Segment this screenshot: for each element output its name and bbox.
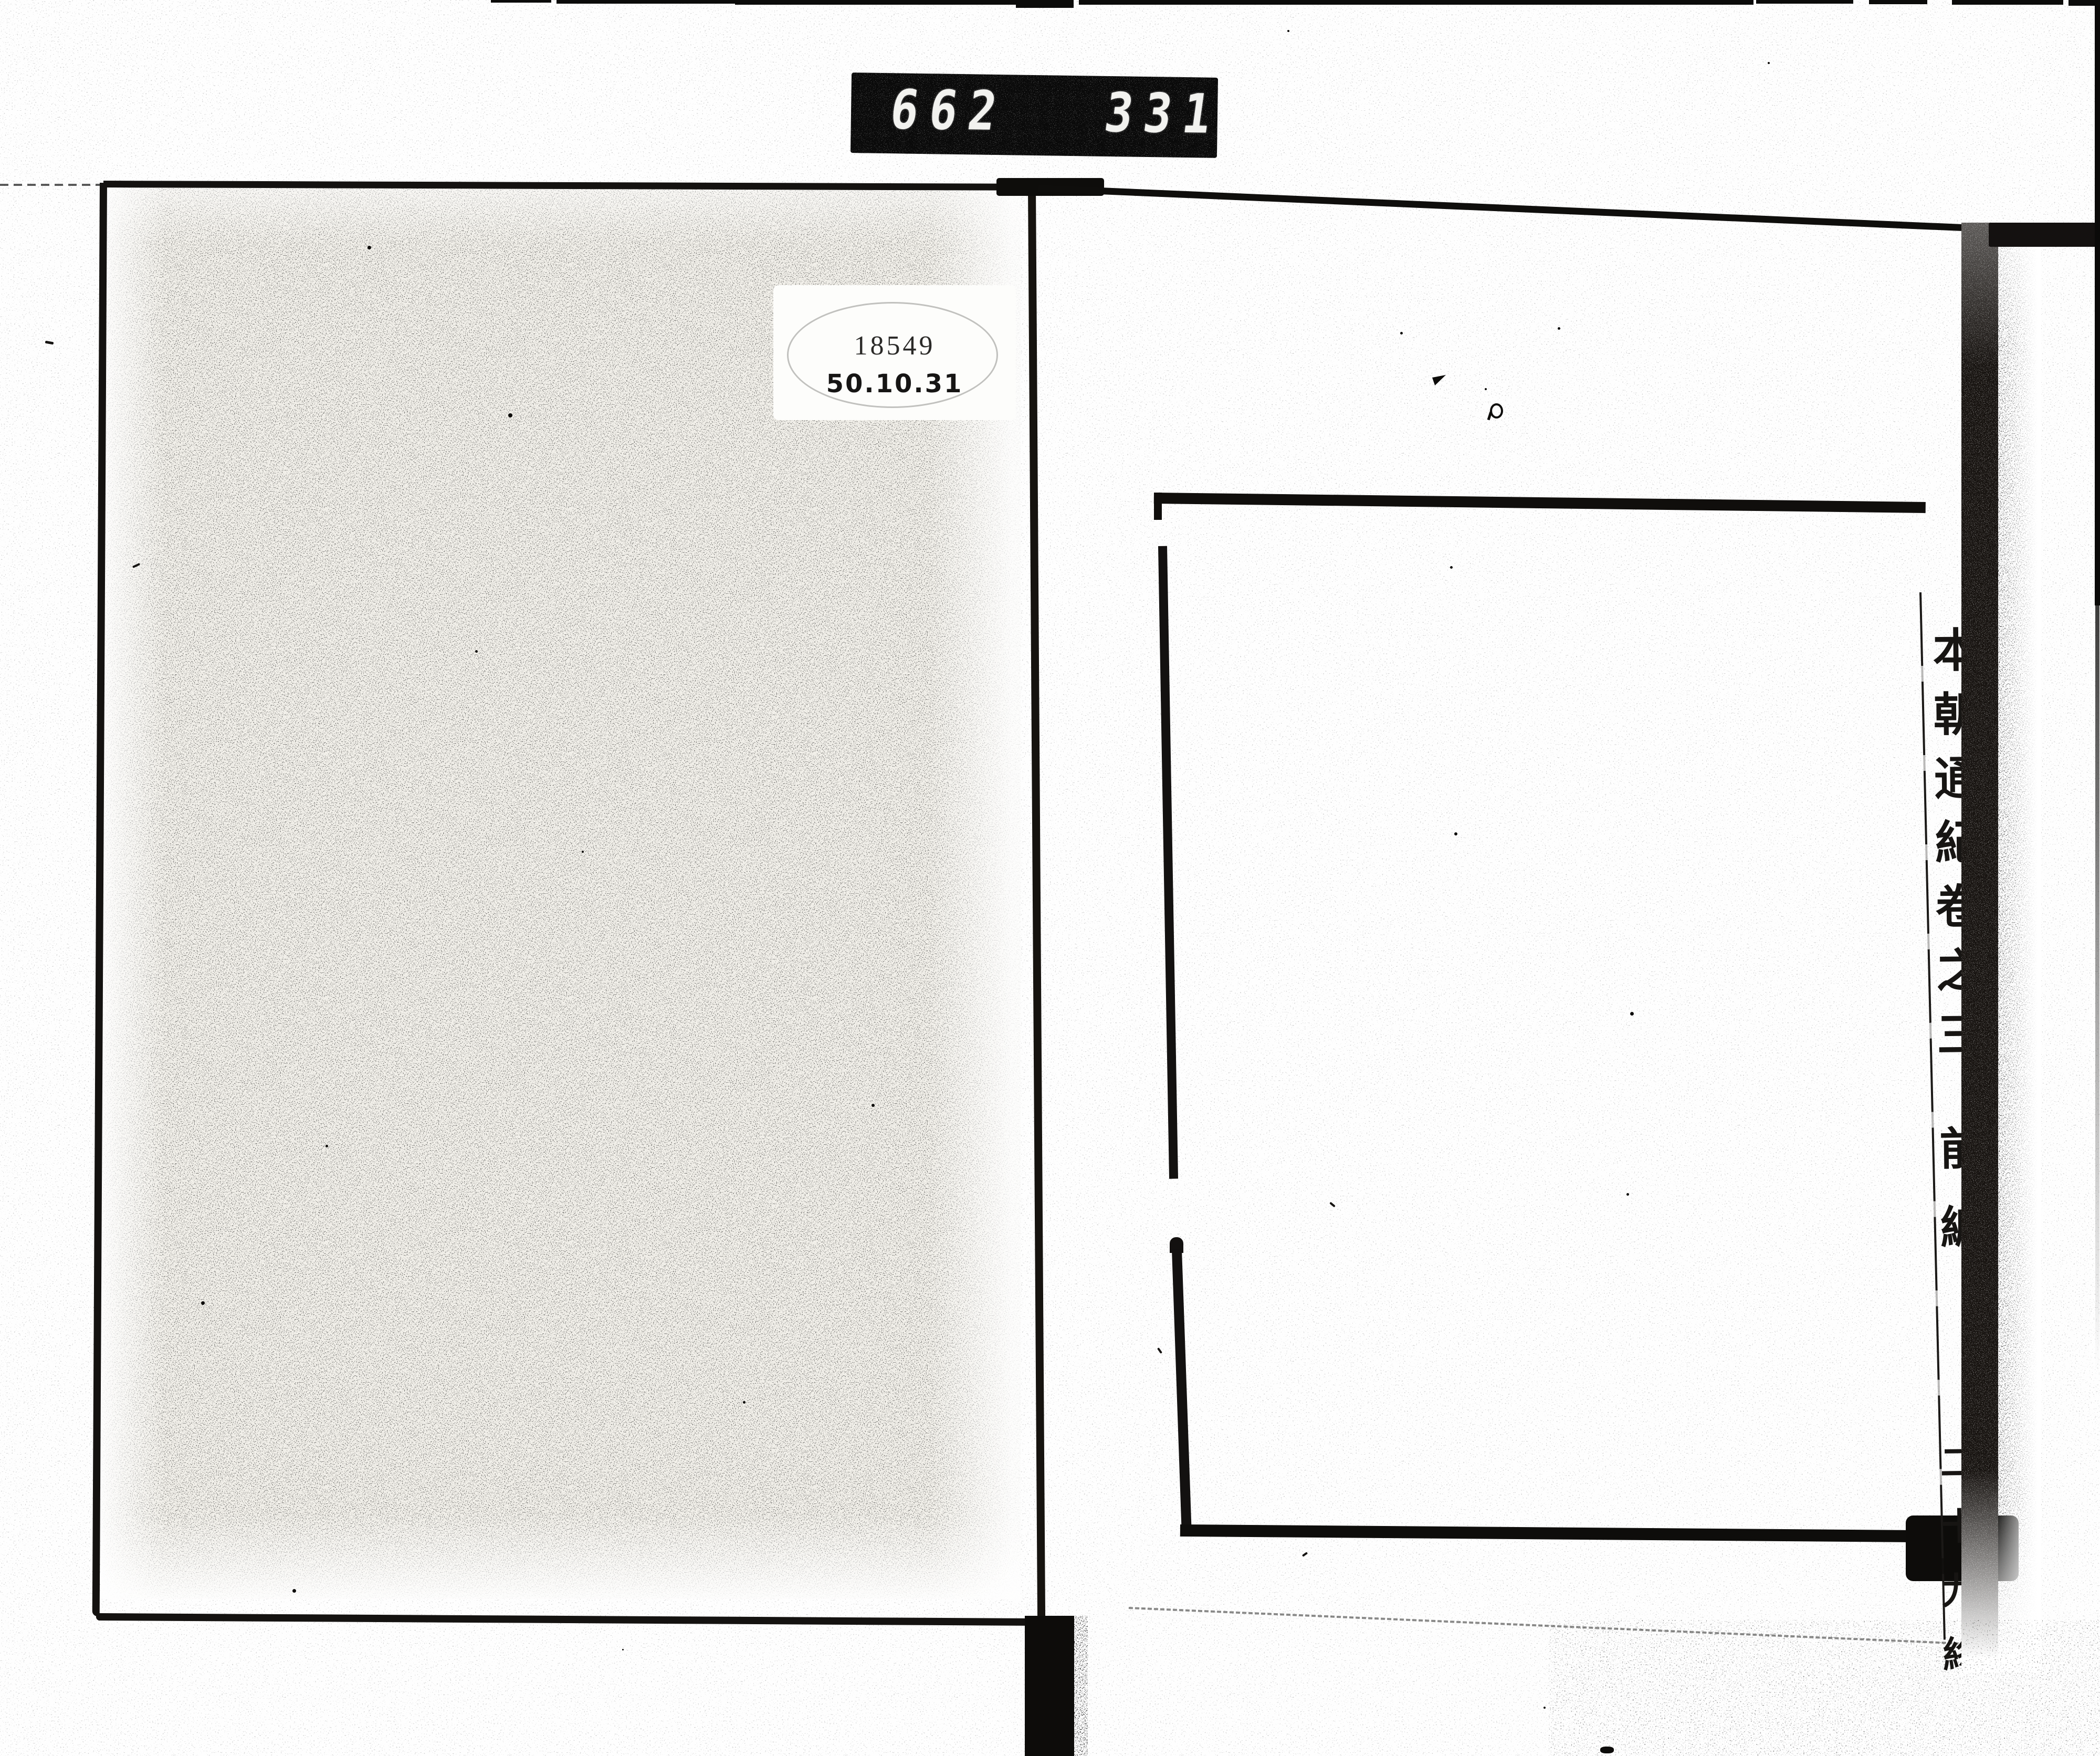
ink-speck (201, 1301, 205, 1305)
binding-fade (1961, 223, 1998, 1673)
ink-blot-ring (1490, 403, 1503, 419)
page-frame-left-lower (1172, 1249, 1191, 1528)
ink-speck (1630, 1012, 1634, 1016)
accession-number: 18549 (773, 330, 1016, 361)
scanner-edge-line (556, 0, 735, 4)
dust-patch (1549, 1620, 2100, 1756)
ink-blot-triangle (1432, 375, 1446, 385)
page-frame-bottom (1180, 1524, 1930, 1542)
page-frame-left-upper (1158, 546, 1178, 1179)
ink-speck (475, 650, 478, 653)
film-edge-strip (2095, 4, 2100, 605)
binding-halo (1998, 229, 2041, 1672)
ink-speck (1543, 1707, 1546, 1709)
ink-speck (508, 413, 512, 417)
scanner-edge-line (735, 0, 1016, 5)
scanner-edge-line (1952, 0, 2063, 5)
ink-blot (1600, 1747, 1614, 1753)
ink-speck (1485, 388, 1487, 390)
ink-speck (1157, 1347, 1162, 1354)
scanner-edge-line (1756, 0, 1853, 4)
ink-speck (1400, 332, 1403, 335)
ink-speck (622, 1649, 624, 1650)
ink-speck (325, 1145, 328, 1147)
ink-speck (871, 1104, 875, 1107)
ink-speck (1626, 1193, 1629, 1196)
film-edge-fade (2095, 604, 2099, 1402)
dust-noise (1549, 1620, 2100, 1756)
gutter-bottom-tab (1025, 1616, 1074, 1756)
frame-counter-display: 662 331. (850, 72, 1218, 158)
page-frame-top-hook (1154, 493, 1162, 520)
cover-border-bottom (96, 1613, 1026, 1626)
gutter-tab-fray (1074, 1616, 1088, 1756)
fray-noise (1074, 1616, 1088, 1756)
ink-speck (45, 341, 54, 345)
binding-shadow-strip (1961, 223, 1998, 1673)
scanner-edge-tab (1016, 0, 1074, 8)
scanner-edge-line (1869, 0, 1927, 4)
library-accession-label: 18549 50.10.31 (773, 285, 1016, 420)
ink-speck (1302, 1552, 1308, 1557)
ink-speck (367, 246, 371, 249)
right-page-top-edge (1038, 185, 1962, 231)
scanner-edge-line (1079, 0, 1753, 5)
ink-speck (582, 851, 584, 853)
scanner-edge-line (491, 0, 551, 3)
accession-date: 50.10.31 (773, 369, 1016, 399)
ink-speck (1287, 30, 1289, 32)
counter-left-digits: 662 (885, 72, 1013, 152)
page-stack-top-shadow (1989, 223, 2098, 247)
page-frame-top (1154, 493, 1926, 513)
book-gutter-line (1028, 188, 1045, 1619)
ink-speck (1329, 1202, 1336, 1208)
counter-right-digits: 331. (1100, 73, 1218, 155)
microfilm-scan-frame: 662 331. 18549 50.10.31 (0, 0, 2100, 1756)
ink-speck (1768, 62, 1770, 64)
cover-top-edge-faint-line (0, 184, 100, 186)
halo-fade (1998, 229, 2041, 1672)
ink-speck (1558, 327, 1560, 330)
ink-speck (292, 1589, 296, 1593)
ink-speck (1454, 832, 1457, 835)
ink-speck (743, 1401, 745, 1404)
ink-speck (1450, 566, 1453, 569)
